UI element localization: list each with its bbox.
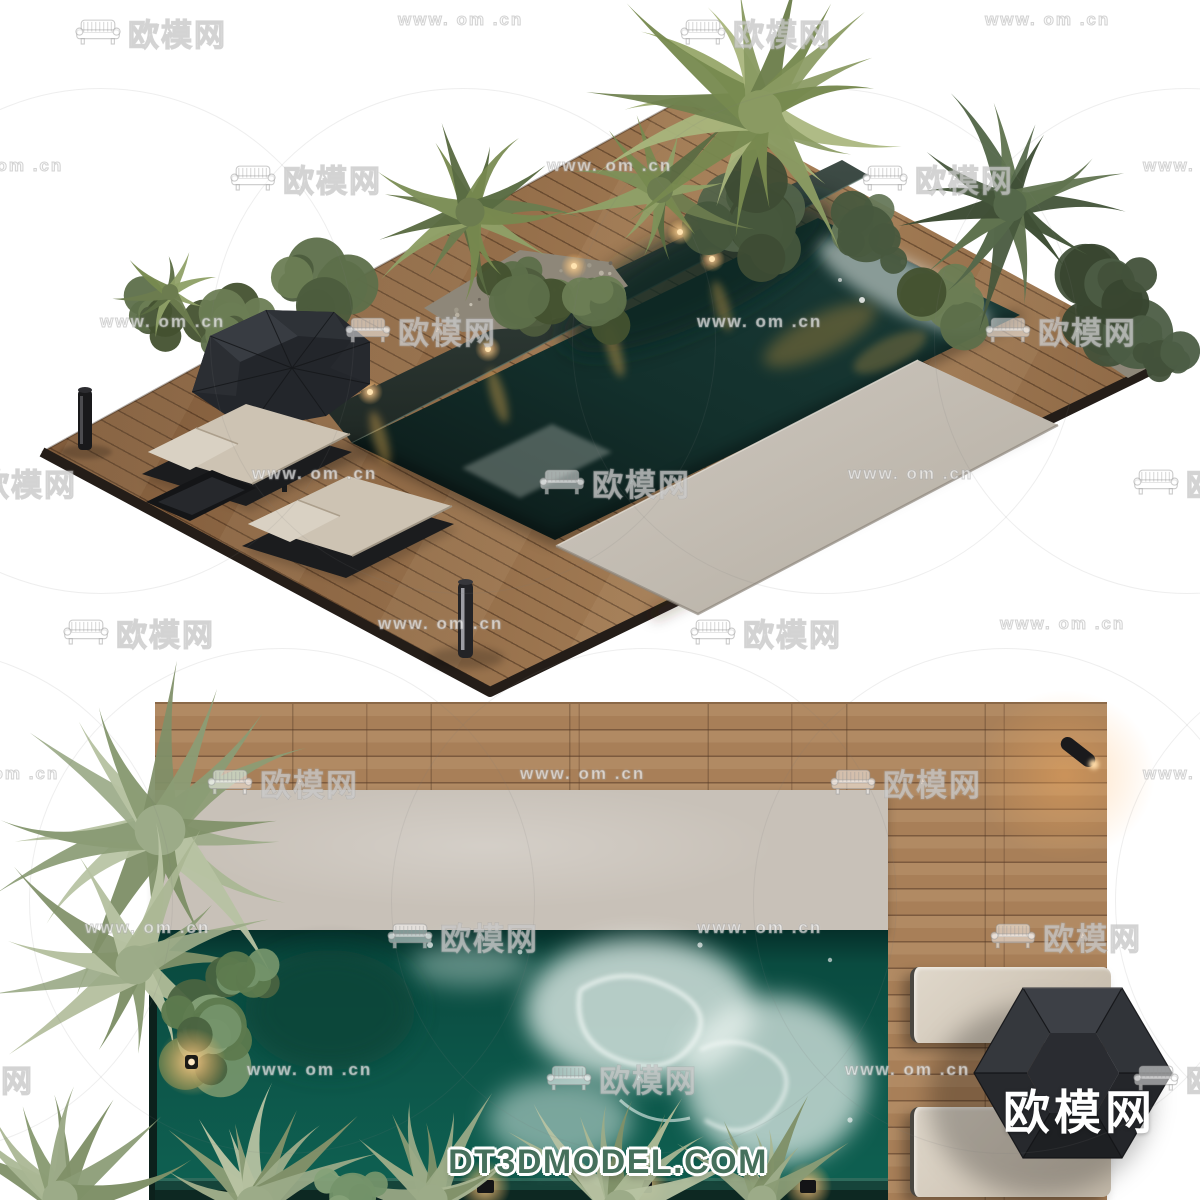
watermark-url: www. om .cn xyxy=(0,764,59,784)
pool-far-wall xyxy=(326,160,868,443)
plan-edge-lights xyxy=(459,1160,832,1200)
sofa-icon xyxy=(207,768,253,797)
watermark-brand: 欧模网 xyxy=(539,460,691,505)
watermark-circle xyxy=(934,88,1200,594)
watermark-brand: 欧模网 xyxy=(63,610,215,655)
watermark-brand: 欧模网 xyxy=(0,460,77,505)
watermark-brand-text: 欧模网 xyxy=(283,156,382,201)
site-url-text: DT3DMODEL.COM xyxy=(448,1143,768,1182)
iso-pool-water xyxy=(352,169,1020,540)
plan-concrete-slab xyxy=(155,790,888,932)
iso-concrete-slab xyxy=(556,360,1058,616)
sconce-light-glow xyxy=(975,690,1155,860)
watermark-brand: 欧模网 xyxy=(690,610,842,655)
wall-sconce xyxy=(1058,734,1102,773)
watermark-url: www. om .cn xyxy=(378,614,503,634)
iso-deck-wood xyxy=(0,0,1200,700)
watermark-url: www. om .cn xyxy=(1000,614,1125,634)
gravel-bed xyxy=(424,250,1182,378)
watermark-brand-text: 欧模网 xyxy=(733,10,832,55)
watermark-brand-text: 欧模网 xyxy=(599,1056,698,1101)
watermark-circle xyxy=(0,88,354,594)
sofa-icon xyxy=(345,316,391,345)
watermark-brand-text: 欧模网 xyxy=(1043,914,1142,959)
watermark-brand: 欧模网 xyxy=(990,914,1142,959)
watermark-url: www. om .cn xyxy=(848,464,973,484)
watermark-circle xyxy=(753,648,1200,1154)
plan-plants xyxy=(0,661,849,1200)
parasol-iso xyxy=(192,310,370,492)
watermark-url: www. om .cn xyxy=(1143,764,1200,784)
sofa-icon xyxy=(1133,1064,1179,1093)
watermark-brand-text: 欧模网 xyxy=(743,610,842,655)
watermark-circle xyxy=(391,648,897,1154)
watermark-brand-text: 欧模网 xyxy=(128,10,227,55)
sofa-icon xyxy=(546,1064,592,1093)
watermark-brand-text: 欧模网 xyxy=(1186,1056,1200,1101)
watermark-brand: 欧模网 xyxy=(546,1056,698,1101)
planting-light xyxy=(158,1028,226,1096)
watermark-url: www. om .cn xyxy=(697,918,822,938)
watermark-brand-text: 欧模网 xyxy=(0,1056,34,1101)
watermark-url: www. om .cn xyxy=(1143,156,1200,176)
bollard-light-1 xyxy=(60,387,112,459)
sofa-icon xyxy=(539,468,585,497)
watermark-url: www. om .cn xyxy=(985,10,1110,30)
plan-pool-left-edge xyxy=(149,930,157,1200)
isometric-scene xyxy=(0,0,1200,700)
watermark-url: www. om .cn xyxy=(398,10,523,30)
iso-plants xyxy=(112,0,1200,382)
watermark-url: www. om .cn xyxy=(697,312,822,332)
watermark-circle xyxy=(572,88,1078,594)
watermark-url: www. om .cn xyxy=(100,312,225,332)
deck-edge-line xyxy=(42,98,685,452)
model-preview-render: 欧模网www. om .cn欧模网www. om .cnwww. om .cn欧… xyxy=(0,0,1200,1200)
watermark-url: www. om .cn xyxy=(845,1060,970,1080)
watermark-url: www. om .cn xyxy=(0,156,63,176)
watermark-brand: 欧模网 xyxy=(75,10,227,55)
watermark-brand-text: 欧模网 xyxy=(1038,308,1137,353)
sofa-icon xyxy=(990,922,1036,951)
sofa-icon xyxy=(63,618,109,647)
sofa-icon xyxy=(830,768,876,797)
watermark-circle xyxy=(210,88,716,594)
watermark-brand: 欧模网 xyxy=(1133,1056,1200,1101)
watermark-brand-text: 欧模网 xyxy=(915,156,1014,201)
bench-cushion-2 xyxy=(910,1107,1111,1197)
deck-rim xyxy=(42,360,1172,692)
pool-tanning-shelf xyxy=(462,424,612,498)
watermark-url: www. om .cn xyxy=(520,764,645,784)
bollard-light-2 xyxy=(428,579,504,669)
chaise-lounge-1 xyxy=(142,404,356,512)
watermark-brand: 欧模网 xyxy=(207,760,359,805)
watermark-brand-text: 欧模网 xyxy=(592,460,691,505)
watermark-brand: 欧模网 xyxy=(862,156,1014,201)
watermark-brand-text: 欧模网 xyxy=(1186,460,1200,505)
watermark-circle xyxy=(0,648,173,1154)
side-tray-table xyxy=(146,470,256,521)
watermark-url: www. om .cn xyxy=(252,464,377,484)
watermark-brand: 欧模网 xyxy=(0,1056,34,1101)
bench-cushion-1 xyxy=(910,967,1111,1043)
sofa-icon xyxy=(230,164,276,193)
watermark-url: www. om .cn xyxy=(85,918,210,938)
watermark-brand-text: 欧模网 xyxy=(883,760,982,805)
chaise-lounge-2 xyxy=(242,476,458,584)
watermark-circle xyxy=(29,648,535,1154)
watermark-brand-text: 欧模网 xyxy=(0,460,77,505)
watermark-brand: 欧模网 xyxy=(830,760,982,805)
plan-deck-wood xyxy=(155,702,1107,1200)
watermark-brand: 欧模网 xyxy=(345,308,497,353)
pool-wall-lights xyxy=(353,242,736,467)
watermark-brand: 欧模网 xyxy=(387,914,539,959)
sofa-icon xyxy=(1133,468,1179,497)
watermark-url: www. om .cn xyxy=(547,156,672,176)
plan-pool-water xyxy=(155,930,888,1200)
top-down-scene xyxy=(0,0,1200,1200)
sofa-icon xyxy=(387,922,433,951)
watermark-circle xyxy=(1115,648,1200,1154)
watermark-brand-text: 欧模网 xyxy=(398,308,497,353)
sofa-icon xyxy=(862,164,908,193)
parasol-top-view xyxy=(928,988,1172,1196)
plan-water-caustics xyxy=(245,938,867,1164)
sofa-icon xyxy=(680,18,726,47)
sofa-icon xyxy=(985,316,1031,345)
watermark-brand-text: 欧模网 xyxy=(260,760,359,805)
watermark-brand: 欧模网 xyxy=(985,308,1137,353)
watermark-brand-text: 欧模网 xyxy=(116,610,215,655)
sofa-icon xyxy=(690,618,736,647)
brand-logo-text: 欧模网 xyxy=(1003,1074,1156,1143)
watermark-brand: 欧模网 xyxy=(680,10,832,55)
sofa-icon xyxy=(75,18,121,47)
watermark-brand-text: 欧模网 xyxy=(440,914,539,959)
watermark-url: www. om .cn xyxy=(247,1060,372,1080)
watermark-brand: 欧模网 xyxy=(1133,460,1200,505)
plan-pool-bottom-wall xyxy=(155,1178,888,1200)
watermark-brand: 欧模网 xyxy=(230,156,382,201)
